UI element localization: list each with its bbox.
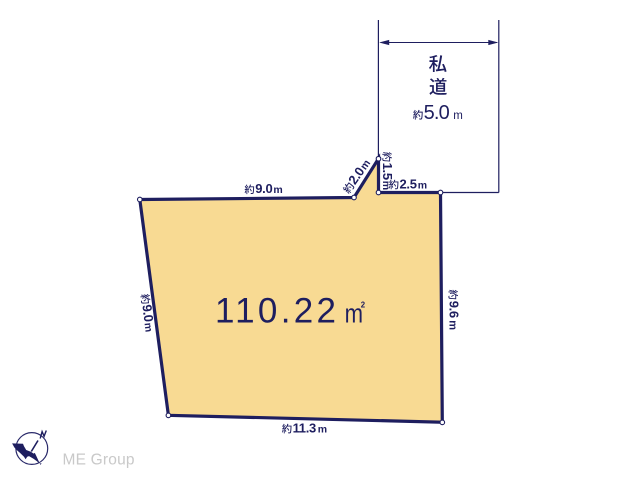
svg-text:9.6: 9.6 — [446, 301, 461, 318]
svg-text:110.22: 110.22 — [215, 292, 339, 331]
svg-text:5.0: 5.0 — [424, 102, 450, 124]
svg-text:2: 2 — [361, 300, 366, 309]
svg-text:m: m — [418, 179, 427, 191]
svg-text:11.3: 11.3 — [293, 421, 316, 436]
svg-text:ME Group: ME Group — [63, 452, 135, 469]
svg-text:m: m — [142, 322, 155, 333]
svg-text:m: m — [318, 424, 327, 436]
svg-text:1.5: 1.5 — [380, 163, 395, 180]
svg-text:9.0: 9.0 — [255, 181, 272, 196]
svg-text:2.5: 2.5 — [400, 176, 417, 191]
svg-text:m: m — [453, 110, 463, 122]
svg-text:m: m — [273, 184, 282, 196]
svg-text:9.0: 9.0 — [139, 304, 156, 323]
svg-text:m: m — [446, 320, 458, 330]
